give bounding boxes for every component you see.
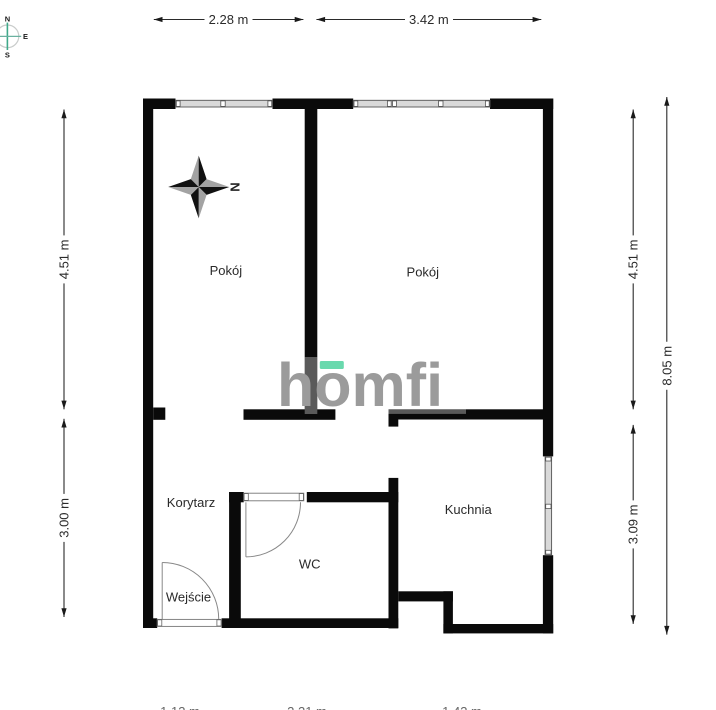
svg-text:Kuchnia: Kuchnia bbox=[445, 502, 493, 517]
svg-text:Wejście: Wejście bbox=[166, 590, 211, 605]
svg-text:WC: WC bbox=[299, 557, 321, 572]
svg-text:8.05 m: 8.05 m bbox=[659, 346, 674, 386]
svg-text:Pokój: Pokój bbox=[407, 264, 440, 279]
svg-text:4.51 m: 4.51 m bbox=[57, 240, 72, 280]
svg-text:3.42 m: 3.42 m bbox=[409, 12, 449, 27]
svg-text:S: S bbox=[5, 51, 10, 60]
svg-text:4.51 m: 4.51 m bbox=[626, 240, 641, 280]
svg-text:1.43 m: 1.43 m bbox=[442, 704, 482, 710]
svg-text:E: E bbox=[23, 32, 28, 41]
svg-text:N: N bbox=[5, 15, 10, 24]
svg-text:2.21 m: 2.21 m bbox=[287, 704, 327, 710]
svg-text:Pokój: Pokój bbox=[210, 263, 243, 278]
svg-text:1.13 m: 1.13 m bbox=[160, 704, 200, 710]
svg-text:Korytarz: Korytarz bbox=[167, 495, 215, 510]
svg-text:homfi: homfi bbox=[277, 351, 443, 419]
svg-text:3.09 m: 3.09 m bbox=[626, 505, 641, 545]
svg-text:3.00 m: 3.00 m bbox=[57, 498, 72, 538]
svg-text:N: N bbox=[228, 182, 243, 191]
svg-text:2.28 m: 2.28 m bbox=[209, 12, 249, 27]
